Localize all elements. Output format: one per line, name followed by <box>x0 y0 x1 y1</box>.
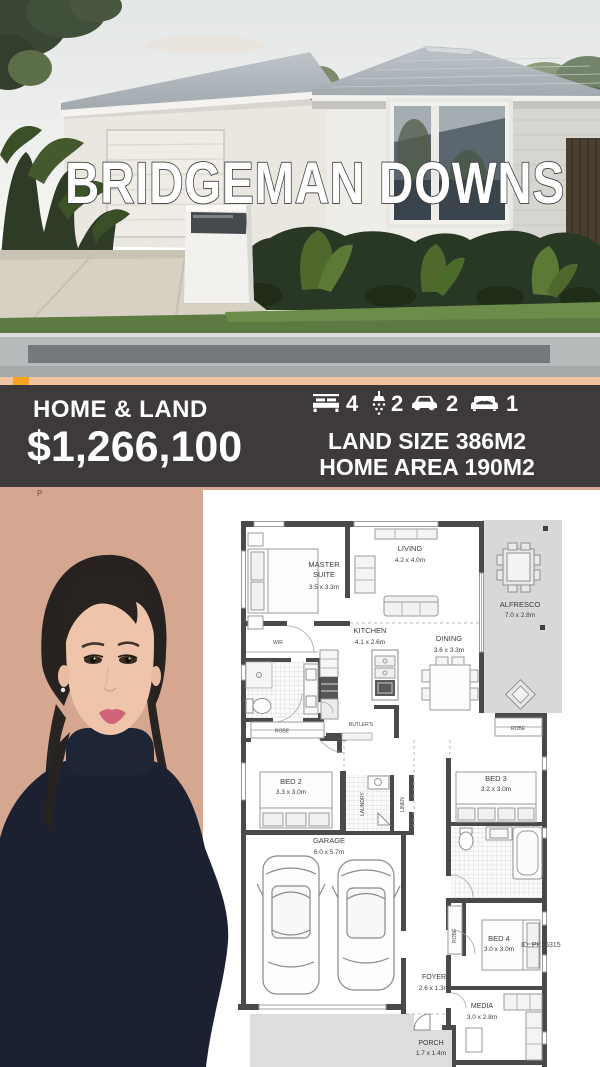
svg-text:P: P <box>37 489 42 498</box>
svg-text:7.0 x 2.8m: 7.0 x 2.8m <box>505 612 535 619</box>
svg-text:3.2 x 3.0m: 3.2 x 3.0m <box>481 786 511 793</box>
svg-text:BUTLER'S: BUTLER'S <box>349 722 374 728</box>
svg-text:FOYER: FOYER <box>422 974 446 981</box>
svg-text:DINING: DINING <box>436 634 462 643</box>
svg-text:BED 4: BED 4 <box>488 934 510 943</box>
svg-text:ID. PK15315: ID. PK15315 <box>521 942 561 949</box>
svg-text:4.2 x 4.0m: 4.2 x 4.0m <box>395 557 425 564</box>
svg-text:WIR: WIR <box>273 640 283 646</box>
svg-text:3.0 x 3.0m: 3.0 x 3.0m <box>484 946 514 953</box>
svg-text:ROBE: ROBE <box>275 729 290 735</box>
svg-text:PORCH: PORCH <box>418 1040 443 1047</box>
svg-text:LIVING: LIVING <box>398 544 423 553</box>
svg-text:3.5 x 3.3m: 3.5 x 3.3m <box>309 584 339 591</box>
svg-text:ALFRESCO: ALFRESCO <box>500 600 541 609</box>
svg-text:3.6 x 3.3m: 3.6 x 3.3m <box>434 647 464 654</box>
svg-text:BED 2: BED 2 <box>280 777 302 786</box>
svg-text:3.3 x 3.0m: 3.3 x 3.0m <box>276 789 306 796</box>
svg-text:KITCHEN: KITCHEN <box>354 626 387 635</box>
svg-text:MEDIA: MEDIA <box>471 1003 494 1010</box>
svg-text:ROBE: ROBE <box>511 726 526 732</box>
svg-text:4.1 x 2.6m: 4.1 x 2.6m <box>355 639 385 646</box>
svg-text:SUITE: SUITE <box>313 570 335 579</box>
svg-text:BRIDGEMAN DOWNS: BRIDGEMAN DOWNS <box>65 151 565 216</box>
svg-text:LAUNDRY: LAUNDRY <box>360 792 366 816</box>
svg-text:3.0 x 2.8m: 3.0 x 2.8m <box>467 1014 497 1021</box>
svg-text:6.0 x 5.7m: 6.0 x 5.7m <box>314 849 344 856</box>
svg-text:MASTER: MASTER <box>308 560 340 569</box>
svg-text:LINEN: LINEN <box>400 797 406 812</box>
svg-text:GARAGE: GARAGE <box>313 836 345 845</box>
svg-text:1.7 x 1.4m: 1.7 x 1.4m <box>416 1050 446 1057</box>
svg-text:2.6 x 1.3m: 2.6 x 1.3m <box>419 985 449 992</box>
svg-text:BED 3: BED 3 <box>485 774 507 783</box>
